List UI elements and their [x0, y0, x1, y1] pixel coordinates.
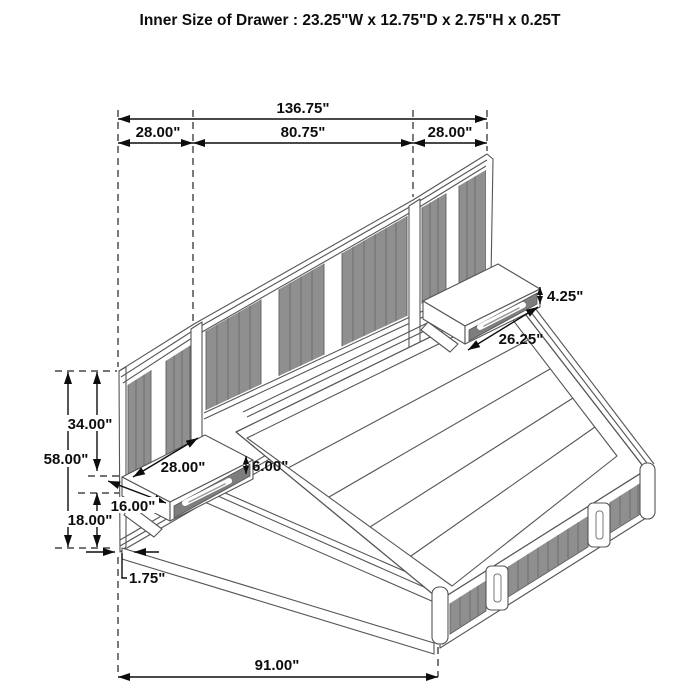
dim-label-bed-length: 91.00" [255, 657, 300, 674]
foot-right-post [640, 463, 655, 519]
dim-label-left-shelf-height: 6.00" [252, 458, 288, 475]
diagram-title: Inner Size of Drawer : 23.25"W x 12.75"D… [140, 12, 561, 29]
dim-label-overall-width: 136.75" [277, 100, 330, 117]
bed-dimension-diagram-page: 136.75" 28.00" 80.75" 28.00" 58.00" 34.0… [0, 0, 700, 700]
dim-label-center-panel: 80.75" [281, 124, 326, 141]
dim-label-left-shelf-width: 28.00" [161, 459, 206, 476]
footboard-handle-plate-2 [588, 503, 610, 547]
foot-left-post [432, 587, 448, 644]
dim-label-right-shelf-height: 4.25" [547, 288, 583, 305]
dim-label-shelf-to-floor: 18.00" [68, 512, 113, 529]
dim-label-headboard-height: 58.00" [44, 451, 89, 468]
dim-label-top-to-shelf: 34.00" [68, 416, 113, 433]
dim-label-left-shelf-depth: 16.00" [111, 498, 156, 515]
bed-dimension-diagram: 136.75" 28.00" 80.75" 28.00" 58.00" 34.0… [0, 0, 700, 700]
dim-label-right-panel: 28.00" [428, 124, 473, 141]
footboard-handle-plate-1 [486, 566, 508, 610]
dim-label-right-shelf-width: 26.25" [499, 331, 544, 348]
dim-label-left-panel: 28.00" [136, 124, 181, 141]
dim-label-thickness: 1.75" [129, 570, 165, 587]
